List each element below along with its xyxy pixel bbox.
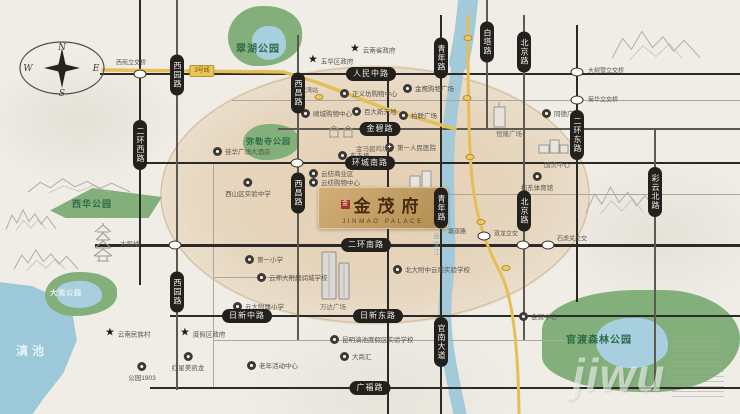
metro-line-vertical (468, 16, 519, 414)
junction-label-大树营立交桥: 大树营立交桥 (588, 66, 624, 75)
poi-dot-icon (403, 84, 412, 93)
building-label-daguanlou: 大观楼 (120, 238, 140, 248)
road-label-二环东路: 二环东路 (570, 110, 584, 160)
poi-dot-icon (244, 178, 253, 187)
poi-label: 第一人民医院 (397, 142, 436, 152)
poi-label: 正义坊购物中心 (352, 88, 398, 98)
poi-dot-icon (184, 352, 193, 361)
poi-百大新天地: 百大新天地 (352, 106, 397, 116)
poi-第一人民医院: 第一人民医院 (385, 142, 436, 152)
building-sketch-guomao (539, 140, 568, 153)
poi-label: 云南省政府 (363, 44, 396, 54)
mountain-sketch (630, 44, 683, 60)
compass-rose-icon: N E S W (14, 36, 110, 100)
road-label-官南大道: 官南大道 (434, 317, 448, 367)
metro-line3-badge: 3号线 (189, 65, 214, 77)
poi-红星美凯龙: 红星美凯龙 (172, 352, 205, 372)
building-label-jinma: 金马碧鸡坊 (356, 143, 389, 153)
logo-seal-icon: 金 (341, 200, 350, 209)
project-name-en: JINMAO PALACE (342, 219, 423, 225)
road-label-西园路: 西园路 (170, 272, 184, 313)
poi-老年活动中心: 老年活动中心 (247, 360, 298, 370)
watermark: jiwu (572, 348, 665, 402)
metro-station-icon (464, 35, 473, 41)
poi-dot-icon (245, 255, 254, 264)
poi-西山区实验中学: 西山区实验中学 (225, 178, 271, 198)
building-sketch-daguanlou (94, 223, 112, 261)
project-name-cn: 金茂府 (354, 192, 426, 217)
poi-label: 第一小学 (257, 254, 283, 264)
compass-w: W (23, 64, 33, 74)
poi-度假区政府: ★度假区政府 (180, 328, 225, 339)
poi-label: 昆明滇池度假区实验学校 (342, 334, 414, 344)
poi-昆明滇池度假区实验学校: 昆明滇池度假区实验学校 (330, 334, 414, 344)
poi-第一小学: 第一小学 (245, 254, 283, 264)
poi-label: 红星美凯龙 (172, 362, 205, 372)
star-icon: ★ (350, 44, 360, 55)
junction-label-西苑立交桥: 西苑立交桥 (116, 58, 146, 67)
poi-柏联广场: 柏联广场 (399, 110, 437, 120)
mountain-sketch (14, 250, 78, 270)
road-label-西昌路: 西昌路 (291, 173, 305, 214)
poi-label: 云南民族村 (118, 328, 151, 338)
star-icon: ★ (308, 55, 318, 66)
building-sketch-henglong (494, 102, 505, 127)
poi-公园1903: 公园1903 (128, 362, 155, 382)
junction-label-双龙立交: 双龙立交 (494, 229, 518, 238)
minor-label-塘双路: 塘双路 (448, 227, 466, 236)
poi-label: 度假区政府 (193, 328, 226, 338)
junction-circle (478, 232, 491, 241)
poi-云南省政府: ★云南省政府 (350, 44, 395, 55)
mountain-sketch (28, 179, 130, 193)
building-label-wanda: 万达广场 (320, 301, 346, 311)
poi-label: 北大附中云南实验学校 (405, 264, 470, 274)
poi-会展中心: 会展中心 (519, 311, 557, 321)
compass-s: S (59, 89, 65, 99)
road-label-广福路: 广福路 (350, 381, 391, 395)
poi-dot-icon (330, 335, 339, 344)
road-label-青年路: 青年路 (434, 188, 448, 229)
road-label-日新中路: 日新中路 (222, 309, 272, 323)
poi-label: 金鹰购物广场 (415, 83, 454, 93)
project-logo-plaque: 金 金茂府 JINMAO PALACE (318, 187, 448, 229)
road-label-青年路: 青年路 (434, 38, 448, 79)
poi-dot-icon (138, 362, 147, 371)
poi-云师大附属润城学校: 云师大附属润城学校 (257, 272, 328, 282)
junction-circle (291, 159, 304, 168)
poi-label: 西山区实验中学 (225, 188, 271, 198)
road-label-人民中路: 人民中路 (346, 67, 396, 81)
poi-金鹰购物广场: 金鹰购物广场 (403, 83, 454, 93)
poi-北大附中云南实验学校: 北大附中云南实验学校 (393, 264, 470, 274)
poi-label: 会展中心 (531, 311, 557, 321)
poi-dot-icon (399, 111, 408, 120)
building-label-henglong: 恒隆广场 (496, 128, 522, 138)
road-label-北京路: 北京路 (517, 191, 531, 232)
mountain-sketch (16, 219, 46, 231)
location-map: 滇池 盘龙江 3号线 金 金茂府 JINMAO PALACE N E S W j… (0, 0, 740, 414)
junction-label-石虎关立交: 石虎关立交 (557, 234, 587, 243)
poi-label: 大商汇 (352, 351, 372, 361)
poi-dot-icon (393, 265, 402, 274)
poi-label: 老年活动中心 (259, 360, 298, 370)
road-label-西园路: 西园路 (170, 55, 184, 96)
junction-circle (169, 241, 182, 250)
poi-dot-icon (213, 147, 222, 156)
poi-大商汇: 大商汇 (340, 351, 372, 361)
poi-云南民族村: ★云南民族村 (105, 328, 150, 339)
mountain-sketch (612, 31, 700, 58)
poi-五华区政府: ★五华区政府 (308, 55, 353, 66)
mountain-sketch (27, 259, 65, 271)
poi-dot-icon (533, 172, 542, 181)
building-sketch-jinma (329, 126, 353, 137)
road-label-二环西路: 二环西路 (133, 120, 147, 170)
road-label-西昌路: 西昌路 (291, 73, 305, 114)
poi-顺城购物中心: 顺城购物中心 (301, 108, 352, 118)
compass-n: N (57, 43, 67, 53)
road-label-二环南路: 二环南路 (341, 238, 391, 252)
poi-label: 柏联广场 (411, 110, 437, 120)
metro-station-icon (463, 95, 472, 101)
metro-station-icon (502, 265, 511, 271)
metro-station-icon (315, 94, 324, 100)
poi-label: 顺城购物中心 (313, 108, 352, 118)
poi-dot-icon (542, 109, 551, 118)
poi-dot-icon (352, 107, 361, 116)
road-label-日新东路: 日新东路 (353, 309, 403, 323)
junction-label-菊华立交桥: 菊华立交桥 (588, 95, 618, 104)
road-label-环城南路: 环城南路 (345, 156, 395, 170)
junction-circle (134, 70, 147, 79)
metro-station-icon (466, 154, 475, 160)
junction-circle (571, 96, 584, 105)
metro-line-3 (103, 70, 455, 129)
poi-dot-icon (257, 273, 266, 282)
poi-dot-icon (309, 178, 318, 187)
poi-云纺购物中心: 云纺购物中心 (309, 177, 360, 187)
building-label-guomao: 国贸中心 (544, 159, 570, 169)
mountain-sketch (600, 199, 643, 214)
metro-station-icon (477, 219, 486, 225)
star-icon: ★ (105, 328, 115, 339)
poi-dot-icon (519, 312, 528, 321)
road-label-金碧路: 金碧路 (360, 122, 401, 136)
poi-佳华广场大酒店: 佳华广场大酒店 (213, 146, 271, 156)
poi-dot-icon (340, 352, 349, 361)
compass-e: E (92, 64, 100, 74)
star-icon: ★ (180, 328, 190, 339)
poi-dot-icon (340, 89, 349, 98)
poi-label: 公园1903 (128, 372, 155, 382)
poi-label: 百大新天地 (364, 106, 397, 116)
road-label-白塔路: 白塔路 (480, 22, 494, 63)
road-label-彩云北路: 彩云北路 (648, 167, 662, 217)
mountain-sketch (6, 210, 56, 230)
junction-circle (571, 68, 584, 77)
poi-label: 五华区政府 (321, 55, 354, 65)
mountain-sketch (48, 185, 109, 193)
poi-label: 云师大附属润城学校 (269, 272, 328, 282)
poi-拓东体育馆: 拓东体育馆 (521, 172, 554, 192)
poi-label: 云纺购物中心 (321, 177, 360, 187)
junction-circle (542, 241, 555, 250)
poi-dot-icon (247, 361, 256, 370)
junction-circle (517, 241, 530, 250)
road-label-北京路: 北京路 (517, 32, 531, 73)
poi-正义坊购物中心: 正义坊购物中心 (340, 88, 398, 98)
poi-label: 佳华广场大酒店 (225, 146, 271, 156)
